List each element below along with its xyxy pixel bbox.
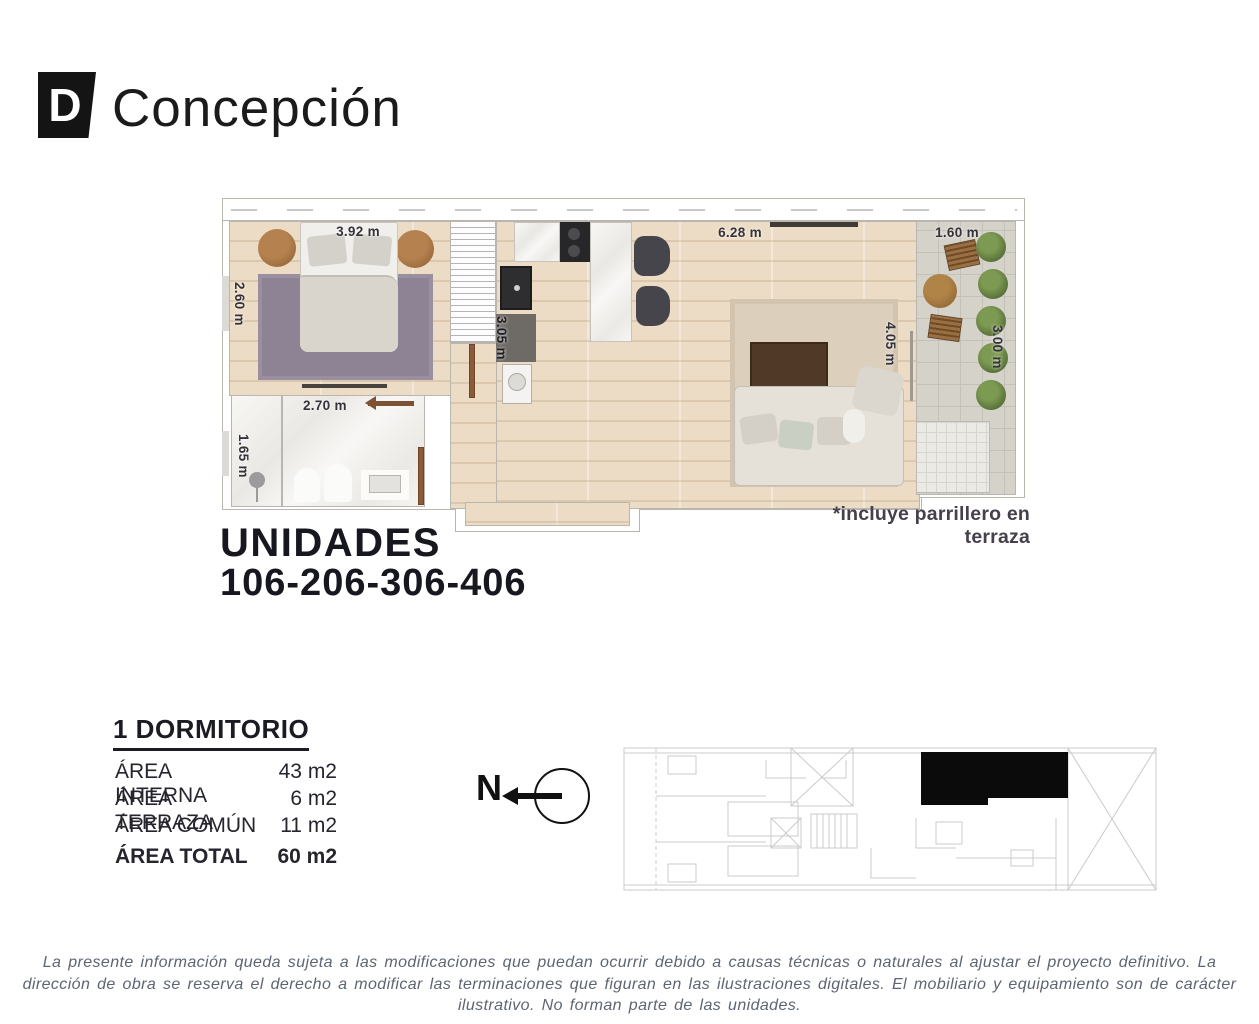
area-label: ÁREA TERRAZA [115, 787, 266, 814]
north-compass: N [472, 758, 597, 834]
terrace-sliding-door [910, 331, 913, 401]
sofa-bolster [843, 409, 865, 443]
washing-machine [502, 364, 532, 404]
disclaimer-text: La presente información queda sujeta a l… [0, 952, 1259, 1017]
dim-bedroom-width: 3.92 m [318, 224, 398, 239]
round-rug-left [258, 229, 296, 267]
bedroom-window [222, 276, 229, 331]
unit-location-marker [921, 752, 1068, 805]
area-row-interna: ÁREA INTERNA 43 m2 [115, 760, 337, 787]
area-row-terraza: ÁREA TERRAZA 6 m2 [115, 787, 337, 814]
bar-stool-2 [636, 286, 670, 326]
dim-terrace-depth: 3.00 m [990, 325, 1005, 375]
top-exterior-wall [222, 198, 1025, 222]
round-rug-right [396, 230, 434, 268]
closet [450, 221, 496, 343]
units-title: UNIDADES [220, 523, 441, 563]
dim-bedroom-depth: 2.60 m [232, 282, 247, 342]
area-value: 43 m2 [264, 760, 337, 787]
area-row-total: ÁREA TOTAL 60 m2 [115, 845, 337, 872]
bidet [294, 468, 320, 502]
building-key-plan [616, 738, 1164, 908]
sofa-cushion [739, 413, 779, 446]
blanket [300, 275, 398, 352]
entry-door [418, 447, 424, 505]
dim-bathroom-depth: 1.65 m [236, 434, 251, 492]
brand-logo-letter: D [48, 82, 85, 128]
brand-name: Concepción [112, 78, 402, 139]
dim-living-depth: 4.05 m [883, 322, 898, 372]
sofa [734, 386, 904, 486]
floor-plan: 3.92 m 2.60 m 2.70 m 1.65 m 3.05 m 6.28 … [222, 196, 1032, 536]
washer-door [508, 373, 526, 391]
area-label: ÁREA INTERNA [115, 760, 264, 787]
dim-kitchen-depth: 3.05 m [494, 316, 509, 366]
vanity-sink [369, 475, 401, 493]
brand-logo: D [38, 72, 96, 138]
coffee-table [750, 342, 828, 390]
plant [978, 269, 1008, 299]
area-label: ÁREA COMÚN [115, 814, 256, 841]
area-value: 11 m2 [262, 814, 337, 841]
bedroom-door [469, 344, 475, 398]
kitchen-sink [500, 266, 532, 310]
terrace-table [923, 274, 957, 308]
dim-bathroom-width: 2.70 m [303, 398, 347, 413]
area-row-comun: ÁREA COMÚN 11 m2 [115, 814, 337, 841]
shower-stem [256, 486, 258, 502]
window-dashes [231, 209, 1017, 211]
kitchen-counter [514, 222, 560, 262]
burner [568, 245, 580, 257]
bar-stool-1 [634, 236, 670, 276]
bathroom-vanity [361, 470, 409, 500]
area-total-label: ÁREA TOTAL [115, 845, 248, 872]
sofa-cushion [778, 419, 815, 450]
entry-floor [465, 502, 630, 526]
terrace-grill-note: *incluye parrillero en terraza [802, 503, 1030, 549]
tv-console [770, 222, 858, 227]
area-value: 6 m2 [266, 787, 337, 814]
sink-drain [514, 285, 520, 291]
brochure-page: D Concepción [0, 0, 1259, 1024]
bed [300, 222, 398, 352]
kitchen-island [590, 222, 632, 342]
plant [976, 380, 1006, 410]
area-table: ÁREA INTERNA 43 m2 ÁREA TERRAZA 6 m2 ÁRE… [115, 760, 337, 872]
unit-type-title: 1 DORMITORIO [113, 714, 309, 751]
units-numbers: 106-206-306-406 [220, 562, 527, 605]
burner [568, 228, 580, 240]
dim-terrace-width: 1.60 m [922, 225, 992, 240]
toilet [324, 464, 352, 502]
bathroom-door-arrow [368, 401, 414, 406]
north-label: N [476, 767, 502, 809]
shower-partition [281, 395, 283, 507]
bedroom-console [302, 384, 387, 388]
bathroom-window [222, 431, 229, 476]
dim-living-width: 6.28 m [700, 225, 780, 240]
terrace-chair-2 [927, 314, 962, 342]
area-total-value: 60 m2 [262, 845, 337, 872]
parrillero-area [916, 421, 990, 493]
